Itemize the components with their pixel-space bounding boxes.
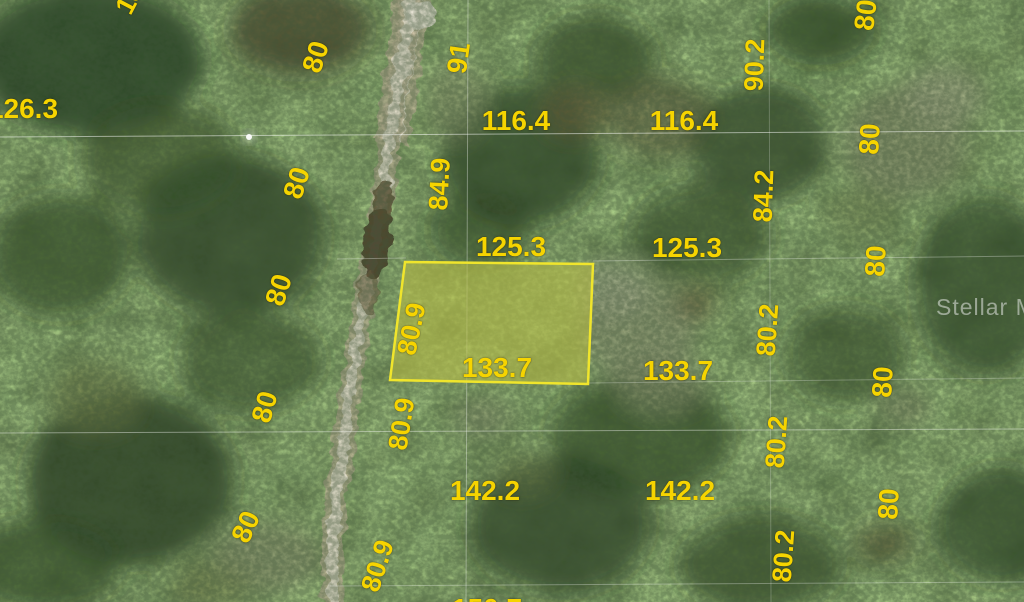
survey-corner-marker-dot bbox=[246, 134, 252, 140]
satellite-imagery-layer bbox=[0, 0, 1024, 602]
parcel-map-image: 126.3116.4116.4125.3125.3133.7133.7142.2… bbox=[0, 0, 1024, 602]
mls-watermark: Stellar MLS bbox=[936, 294, 1024, 321]
highlighted-parcel bbox=[390, 262, 593, 384]
